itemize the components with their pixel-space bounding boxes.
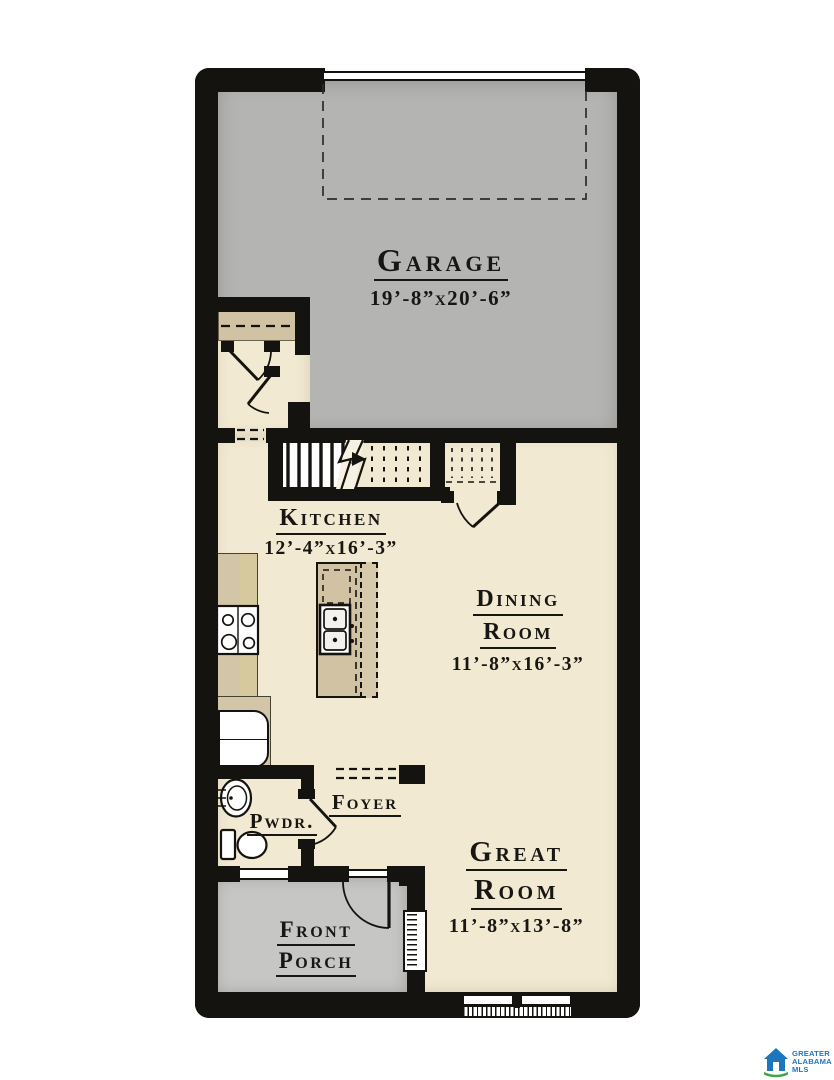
stair-closet (441, 448, 513, 527)
dining-room-label: Dining Room 11’-8”x16’-3” (413, 587, 623, 676)
garage-label: Garage 19’-8”x20’-6” (321, 243, 561, 311)
garage-dims: 19’-8”x20’-6” (370, 286, 512, 311)
island-details (320, 566, 356, 694)
stair-treads-dashed (372, 446, 420, 486)
dining-room-name-line2: Room (480, 620, 556, 649)
stairs (283, 440, 420, 490)
great-room-name-line1: Great (466, 837, 566, 871)
front-porch-name-line1: Front (277, 918, 356, 946)
floor-plan: Garage 19’-8”x20’-6” Kitchen 12’-4”x16’-… (0, 0, 834, 1080)
mls-logo-line3: MLS (792, 1066, 832, 1074)
island-sink-symbol (320, 605, 354, 654)
great-room-dims: 11’-8”x13’-8” (449, 915, 584, 938)
great-room-name-line2: Room (471, 875, 562, 909)
front-porch-name-line2: Porch (276, 949, 357, 977)
door-hinge-post (441, 491, 454, 503)
kitchen-dims: 12’-4”x16’-3” (264, 538, 398, 560)
garage-door-swing-area (323, 84, 586, 199)
garage-entry-doors (221, 341, 280, 413)
dining-room-dims: 11’-8”x16’-3” (452, 654, 585, 676)
closet-door-leaf (473, 498, 505, 527)
dishwasher-symbol (323, 570, 350, 603)
mls-logo: GREATER ALABAMA MLS (763, 1044, 834, 1080)
mls-logo-text: GREATER ALABAMA MLS (792, 1050, 832, 1073)
powder-room-label: Pwdr. (212, 810, 352, 836)
garage-name: Garage (374, 243, 508, 281)
powder-room-name: Pwdr. (247, 810, 318, 836)
kitchen-name: Kitchen (276, 506, 385, 535)
kitchen-label: Kitchen 12’-4”x16’-3” (231, 506, 431, 560)
dining-room-name-line1: Dining (473, 587, 562, 616)
front-porch-label: Front Porch (231, 918, 401, 977)
door-hinge-post (221, 341, 234, 352)
closet-door-arc (457, 503, 473, 527)
stove-symbol (217, 606, 258, 654)
hall-opening-dashes (237, 430, 264, 439)
mls-house-icon (763, 1046, 789, 1078)
floor-plan-page: Garage 19’-8”x20’-6” Kitchen 12’-4”x16’-… (0, 0, 834, 1080)
door-hinge-post (264, 341, 280, 352)
foyer-opening-dashes (336, 769, 398, 778)
stair-treads-bg (283, 443, 347, 487)
great-room-label: Great Room 11’-8”x13’-8” (409, 837, 624, 938)
